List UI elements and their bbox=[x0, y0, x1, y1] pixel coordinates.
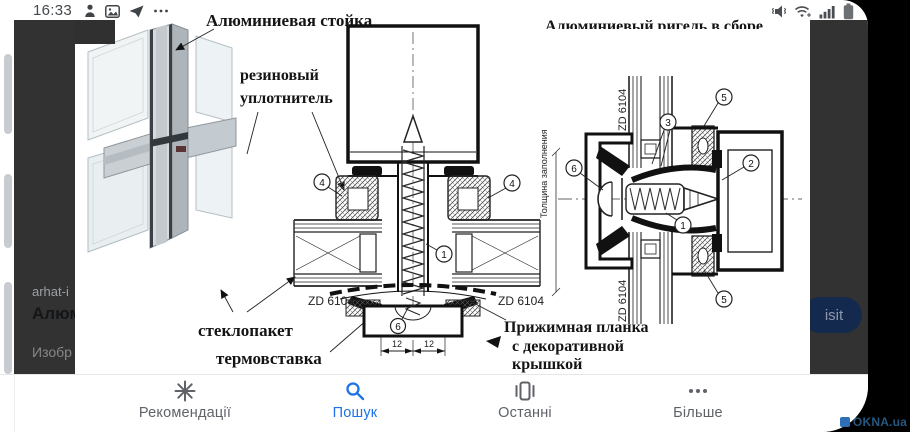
svg-text:6: 6 bbox=[395, 322, 401, 333]
profile-3d-render bbox=[88, 24, 236, 252]
diagram-image[interactable]: Алюминиевая стойка Алюминиевый ригель в … bbox=[0, 0, 868, 375]
signal-icon bbox=[819, 5, 836, 19]
more-notifications-icon bbox=[153, 8, 169, 14]
notification-app-icon bbox=[84, 4, 96, 18]
nav-item-more[interactable]: Більше bbox=[628, 379, 768, 421]
svg-text:5: 5 bbox=[721, 93, 727, 104]
callout-5-top: 5 bbox=[704, 89, 732, 126]
nav-label: Більше bbox=[673, 405, 723, 421]
background-images-label: Изобр bbox=[32, 344, 72, 360]
svg-text:4: 4 bbox=[509, 179, 515, 190]
svg-text:1: 1 bbox=[680, 221, 686, 232]
sparkle-icon bbox=[173, 379, 197, 403]
callout-4-right: 4 bbox=[488, 175, 520, 198]
gallery-icon bbox=[105, 5, 120, 18]
svg-text:5: 5 bbox=[721, 295, 727, 306]
label-rubber-1: резиновый bbox=[240, 67, 319, 84]
code-zd-transom-bottom: ZD 6104 bbox=[617, 280, 629, 322]
divider bbox=[14, 375, 15, 432]
svg-text:2: 2 bbox=[748, 159, 754, 170]
label-rubber-2: уплотнитель bbox=[240, 90, 333, 107]
svg-text:3: 3 bbox=[665, 118, 671, 129]
background-page-title: Алюм bbox=[32, 304, 75, 324]
search-icon bbox=[343, 379, 367, 403]
callout-1-center: 1 bbox=[426, 244, 452, 262]
code-zd-right: ZD 6104 bbox=[498, 294, 544, 308]
code-zd-transom-top: ZD 6104 bbox=[617, 89, 629, 131]
wifi-icon bbox=[794, 4, 812, 19]
more-icon bbox=[686, 379, 710, 403]
status-bar: 16:33 bbox=[0, 0, 868, 22]
nav-label: Останні bbox=[498, 405, 552, 421]
label-infill-thickness: Толщина заполнения bbox=[539, 129, 549, 218]
dim-12-left: 12 bbox=[392, 339, 402, 349]
edge-panel-handle[interactable] bbox=[4, 54, 12, 134]
nav-item-search[interactable]: Пошук bbox=[285, 379, 425, 421]
svg-text:с декоративной: с декоративной bbox=[512, 338, 624, 355]
mute-vibrate-icon bbox=[772, 4, 787, 19]
mullion-cross-section: 12 12 ZD 6104 ZD 6104 Толщина заполнения… bbox=[294, 26, 560, 356]
watermark-text: OKNA.ua bbox=[853, 415, 907, 429]
visit-button[interactable]: isit bbox=[810, 297, 862, 333]
transom-cross-section: ZD 6104 ZD 6104 5 3 2 6 1 bbox=[558, 76, 802, 324]
nav-label: Пошук bbox=[333, 405, 378, 421]
telegram-icon bbox=[129, 5, 144, 18]
bottom-nav-bar: Рекомендації Пошук Останні bbox=[0, 374, 868, 432]
nav-item-recommendations[interactable]: Рекомендації bbox=[115, 379, 255, 421]
battery-icon bbox=[843, 3, 854, 20]
background-site-name: arhat-i bbox=[32, 284, 69, 299]
nav-label: Рекомендації bbox=[139, 405, 231, 421]
nav-item-recent[interactable]: Останні bbox=[455, 379, 595, 421]
watermark: OKNA.ua bbox=[840, 415, 907, 429]
watermark-logo-icon bbox=[840, 417, 850, 427]
code-zd-left: ZD 6104 bbox=[308, 294, 354, 308]
svg-text:1: 1 bbox=[441, 250, 447, 261]
svg-text:6: 6 bbox=[571, 164, 577, 175]
edge-panel-handle[interactable] bbox=[4, 174, 12, 248]
svg-text:4: 4 bbox=[319, 178, 325, 189]
phone-screen: Алюминиевая стойка Алюминиевый ригель в … bbox=[0, 0, 868, 432]
dimmed-page-overlay-top bbox=[75, 20, 115, 44]
label-glass-unit: стеклопакет bbox=[198, 321, 293, 340]
edge-panel-handle[interactable] bbox=[4, 282, 12, 374]
dimmed-page-overlay-right[interactable]: isit bbox=[810, 20, 868, 374]
label-thermal-insert: термовставка bbox=[216, 349, 322, 368]
dimmed-page-overlay-left[interactable]: arhat-i Алюм Изобр bbox=[14, 20, 75, 374]
dim-12-right: 12 bbox=[424, 339, 434, 349]
clock: 16:33 bbox=[33, 2, 72, 19]
recent-icon bbox=[513, 379, 537, 403]
phone-screenshot: { "status_bar": { "time": "16:33" }, "ba… bbox=[0, 0, 910, 432]
svg-text:крышкой: крышкой bbox=[512, 356, 582, 373]
